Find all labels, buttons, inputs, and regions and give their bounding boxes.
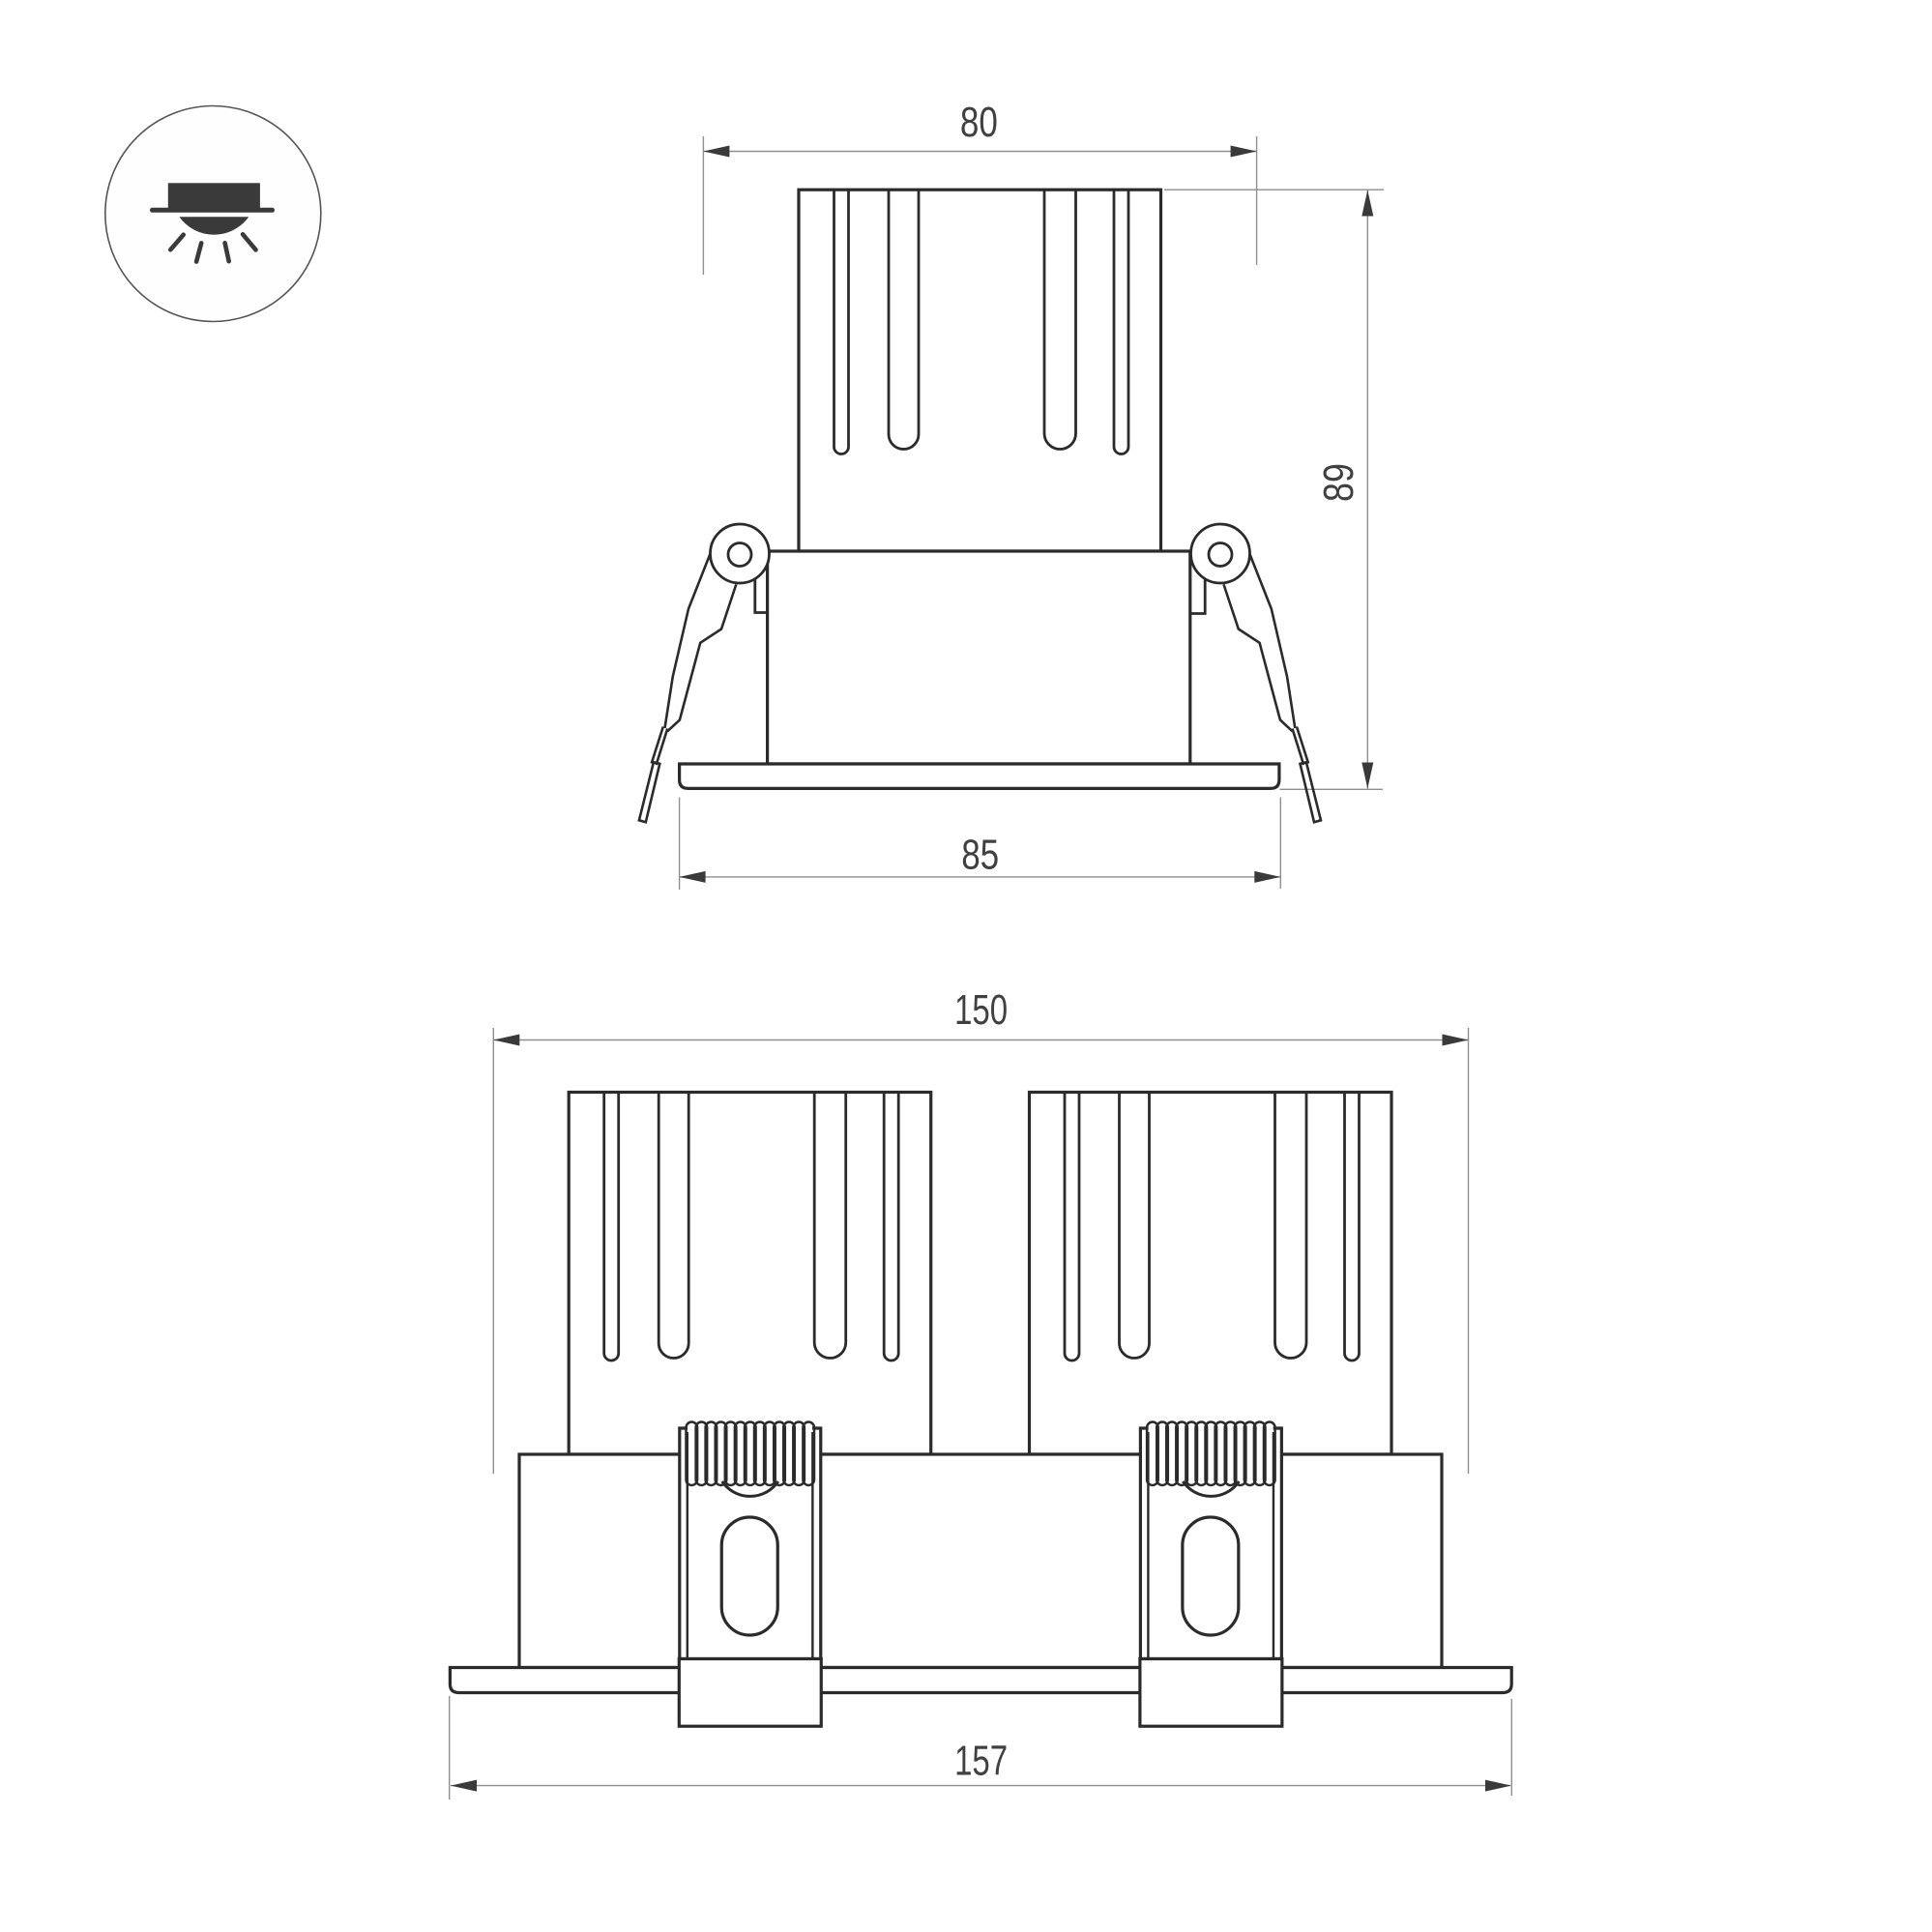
- svg-text:85: 85: [961, 832, 999, 879]
- svg-text:80: 80: [960, 99, 998, 146]
- svg-text:89: 89: [1315, 463, 1362, 502]
- svg-text:150: 150: [954, 986, 1008, 1034]
- svg-text:157: 157: [954, 1738, 1008, 1785]
